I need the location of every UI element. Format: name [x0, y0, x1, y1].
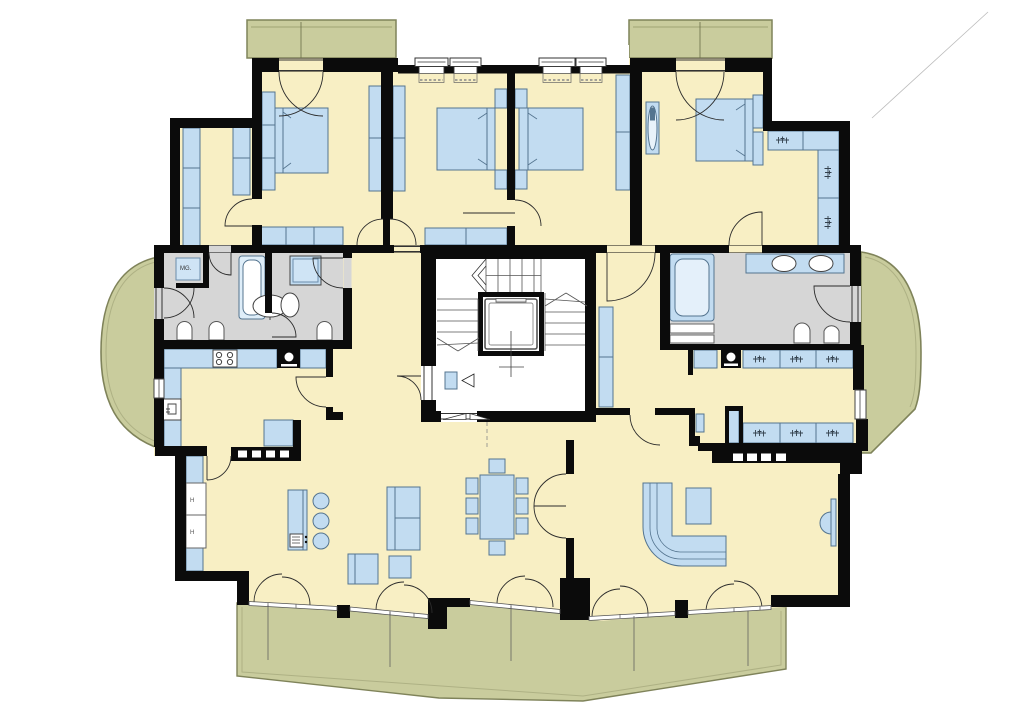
svg-text:H: H — [190, 498, 194, 504]
svg-text:MG.: MG. — [180, 266, 192, 272]
svg-text:H: H — [190, 530, 194, 536]
